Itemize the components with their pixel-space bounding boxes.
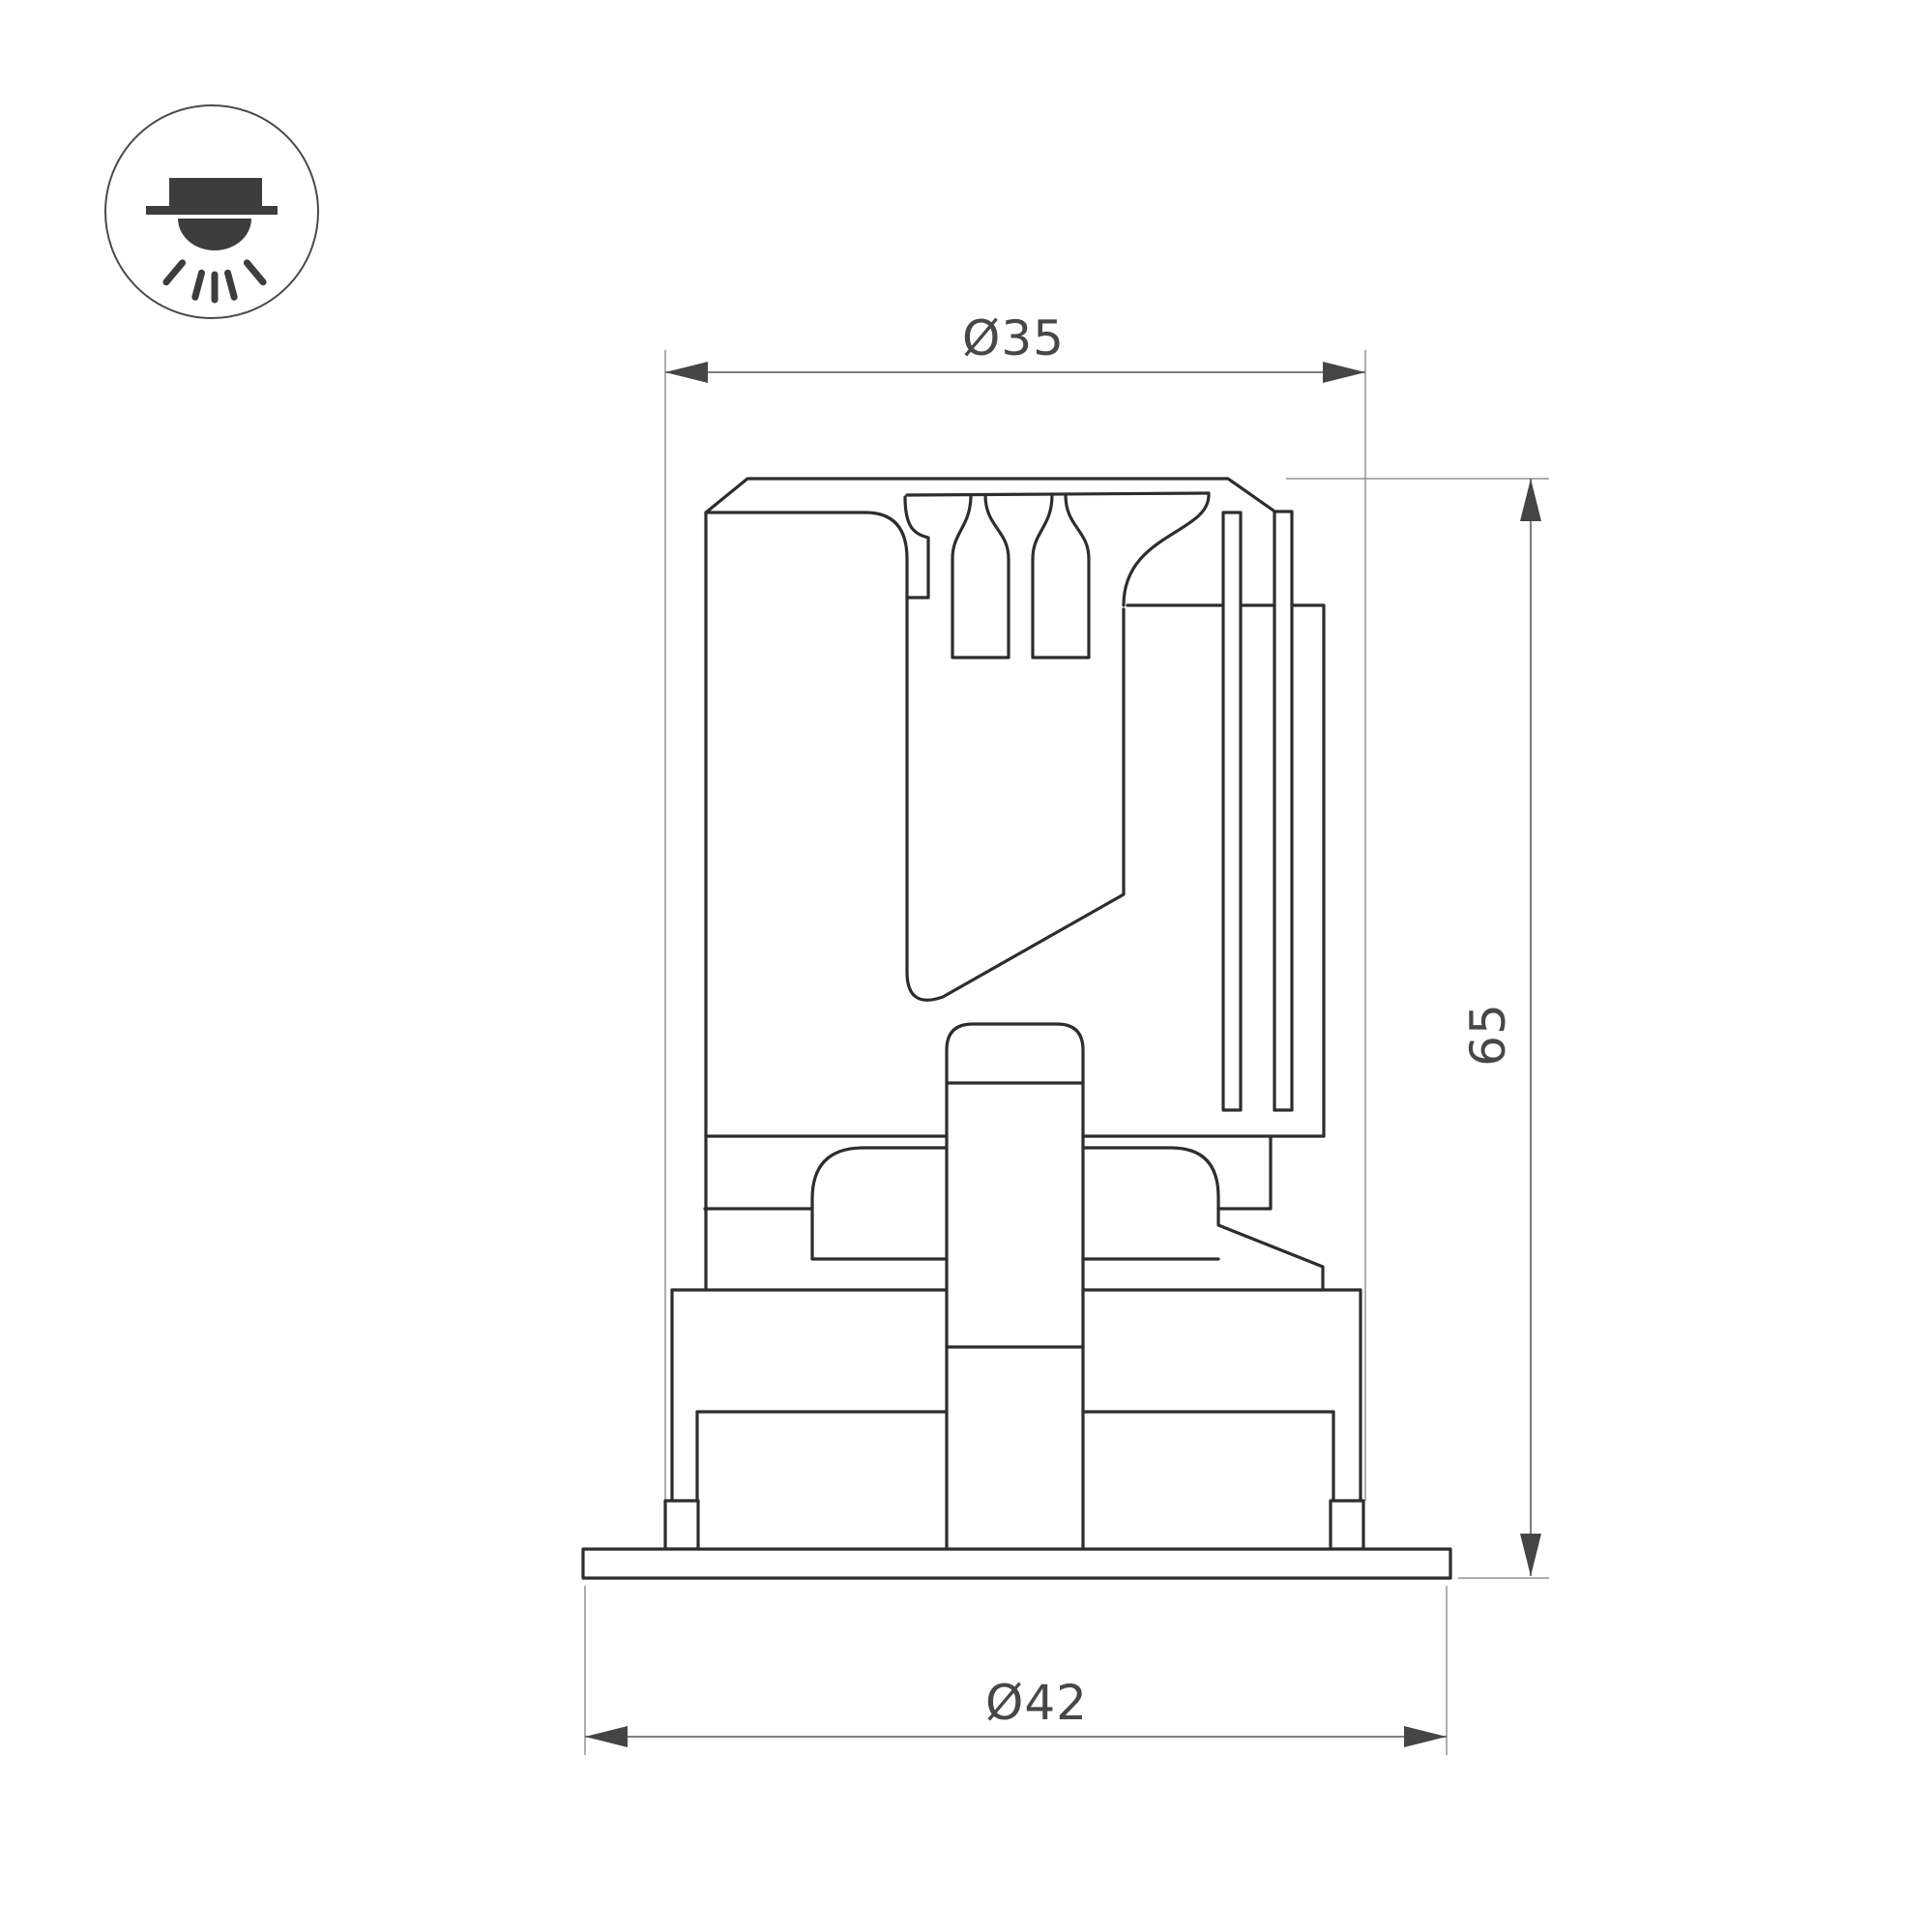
- right-notch: [1218, 1136, 1271, 1209]
- icon-fixture-body: [169, 178, 262, 209]
- recessed-downlight-icon: [105, 105, 318, 318]
- trim-plate: [583, 1549, 1450, 1578]
- technical-drawing-canvas: Ø35 65 Ø42: [0, 0, 1932, 1932]
- dimension-label-height: 65: [1460, 1003, 1516, 1067]
- spring-foot: [1331, 1501, 1363, 1549]
- spring-foot: [665, 1501, 698, 1549]
- dimension-label-bottom: Ø42: [985, 1675, 1088, 1731]
- lens-holder-right: [1083, 1148, 1323, 1290]
- can-body: [665, 1290, 1363, 1549]
- technical-drawing-page: Ø35 65 Ø42: [0, 0, 1932, 1932]
- lens-holder-left: [812, 1148, 947, 1259]
- luminaire-section-drawing: [583, 479, 1450, 1578]
- heatsink-outline: [706, 479, 1273, 1290]
- icon-ceiling-line: [146, 206, 278, 215]
- mounting-stem: [947, 1024, 1083, 1549]
- cooling-pin: [1274, 512, 1292, 1110]
- dimension-height: 65: [1460, 479, 1541, 1576]
- cooling-pin: [1223, 512, 1241, 1110]
- dimension-label-top: Ø35: [962, 310, 1065, 366]
- dimension-top-diameter: Ø35: [665, 310, 1365, 383]
- extension-lines: [585, 350, 1549, 1755]
- heatsink-fins: [905, 493, 1209, 658]
- dimension-bottom-diameter: Ø42: [585, 1675, 1447, 1747]
- heatsink-cavity: [706, 512, 1124, 1000]
